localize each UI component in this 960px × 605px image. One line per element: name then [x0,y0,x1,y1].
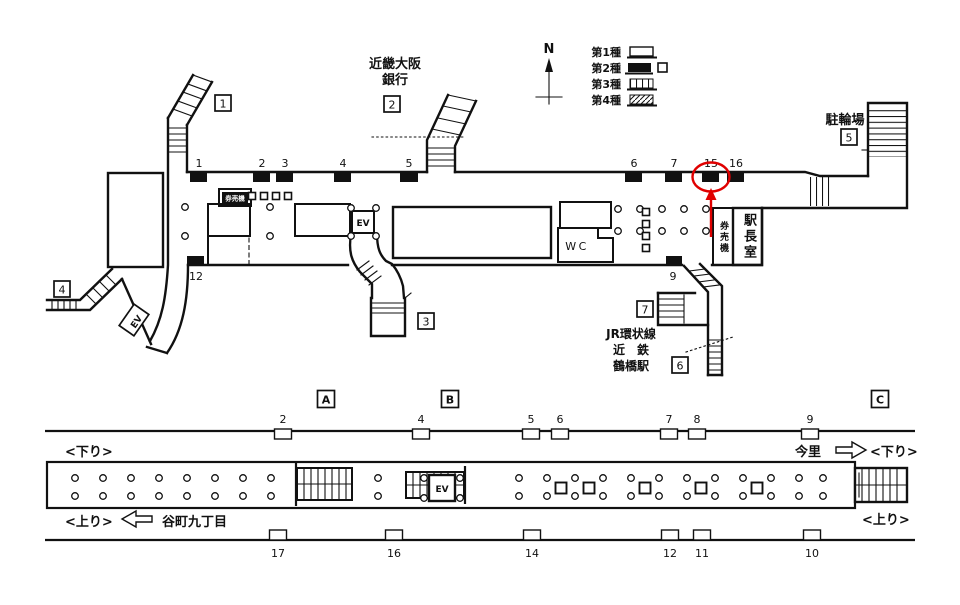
svg-text:4: 4 [418,413,425,426]
compass-north-label: N [544,42,555,57]
bank-label-line2: 銀行 [382,72,408,88]
compass: N [536,42,562,104]
legend-type1-label: 第1種 [591,45,621,59]
legend-type1-icon [630,47,653,56]
station-map: N 第1種 第2種 第3種 第4種 [0,0,960,605]
kintetsu-label: 近 鉄 [613,342,649,357]
svg-text:7: 7 [666,413,673,426]
ad-positions-top-wall [187,173,744,265]
svg-text:11: 11 [695,547,709,560]
platform-stairs-east [855,468,907,502]
ticket-machine-room-label: 券売機 [714,211,733,264]
svg-text:5: 5 [528,413,535,426]
ad-squares-row [249,193,292,200]
legend: 第1種 第2種 第3種 第4種 [591,45,667,107]
svg-text:3: 3 [423,316,430,329]
svg-text:10: 10 [805,547,819,560]
platform-top-numbers: 2 4 5 6 7 8 9 [280,413,814,426]
exit-box-4: 4 [54,281,70,297]
svg-text:4: 4 [59,284,66,297]
elevator-concourse: EV [352,211,374,233]
svg-text:12: 12 [189,270,203,283]
stairs-block-right [295,204,350,236]
exit3-stairs [350,234,411,336]
legend-type3-label: 第3種 [591,77,621,91]
svg-text:5: 5 [406,157,413,170]
imazato-label: 今里 [794,444,821,460]
svg-text:2: 2 [259,157,266,170]
tanimachi-label: 谷町九丁目 [162,514,227,530]
platform-stairs-1 [296,461,352,506]
wc-room: WC [558,228,613,262]
down-label-right: <下り> [870,445,918,460]
svg-text:2: 2 [280,413,287,426]
left-room [108,173,163,267]
platform-section: A B C 2 4 5 6 7 8 9 [45,391,918,561]
svg-text:A: A [322,394,331,407]
svg-text:16: 16 [387,547,401,560]
left-arrow-icon [122,511,152,527]
svg-text:C: C [876,394,884,407]
pillar-dots-concourse [182,204,710,240]
stationmaster-room-label: 駅長室 [735,209,762,265]
legend-type4-icon [630,95,653,104]
bank-label-line1: 近畿大阪 [369,56,422,72]
legend-type3-icon [630,79,653,88]
jr-boundary-dotted-line [686,337,733,352]
svg-text:7: 7 [671,157,678,170]
svg-text:14: 14 [525,547,539,560]
svg-text:9: 9 [670,270,677,283]
svg-text:9: 9 [807,413,814,426]
platform-bottom-numbers: 17 16 14 12 11 10 [271,547,819,560]
svg-text:2: 2 [389,99,396,112]
elevator-platform: EV [429,475,455,501]
svg-text:6: 6 [677,360,684,373]
section-box-a: A [318,391,335,408]
svg-text:3: 3 [282,157,289,170]
up-label-left: <上り> [65,515,113,530]
svg-text:7: 7 [642,304,649,317]
svg-text:8: 8 [694,413,701,426]
legend-type2-square-icon [658,63,667,72]
svg-text:6: 6 [631,157,638,170]
elevator-platform-label: EV [435,485,448,495]
svg-text:1: 1 [196,157,203,170]
stairs-block-left [208,204,250,236]
svg-text:5: 5 [846,132,853,145]
legend-type4-label: 第4種 [591,93,621,107]
elevator-concourse-label: EV [356,219,369,229]
section-box-c: C [872,391,889,408]
exit-box-6: 6 [672,357,688,373]
section-box-b: B [442,391,459,408]
svg-text:17: 17 [271,547,285,560]
exit-box-5: 5 [841,129,857,145]
legend-type2-label: 第2種 [591,61,621,75]
exit-box-3: 3 [418,313,434,329]
wc-stairs [560,202,611,228]
down-label-left: <下り> [65,445,113,460]
svg-text:4: 4 [340,157,347,170]
central-room [393,207,551,258]
platform-ad-rects-bottom [270,530,821,540]
svg-text:1: 1 [220,98,227,111]
svg-text:16: 16 [729,157,743,170]
concourse: EV 券売機 EV [47,56,907,375]
exit-box-2: 2 [384,96,400,112]
right-arrow-icon [836,442,866,458]
exit-box-1: 1 [215,95,231,111]
legend-type2-icon [628,63,651,72]
bicycle-parking-label: 駐輪場 [825,112,864,128]
wc-label: WC [565,240,589,253]
ticket-machine-box-label: 券売機 [225,194,245,203]
svg-text:B: B [446,394,454,407]
jr-loop-line-label: JR環状線 [605,326,656,341]
station-map-svg: N 第1種 第2種 第3種 第4種 [0,0,960,605]
up-label-right: <上り> [862,513,910,528]
exit-box-7: 7 [637,301,653,317]
svg-text:12: 12 [663,547,677,560]
svg-text:6: 6 [557,413,564,426]
tsuruhashi-label: 鶴橋駅 [613,358,650,373]
